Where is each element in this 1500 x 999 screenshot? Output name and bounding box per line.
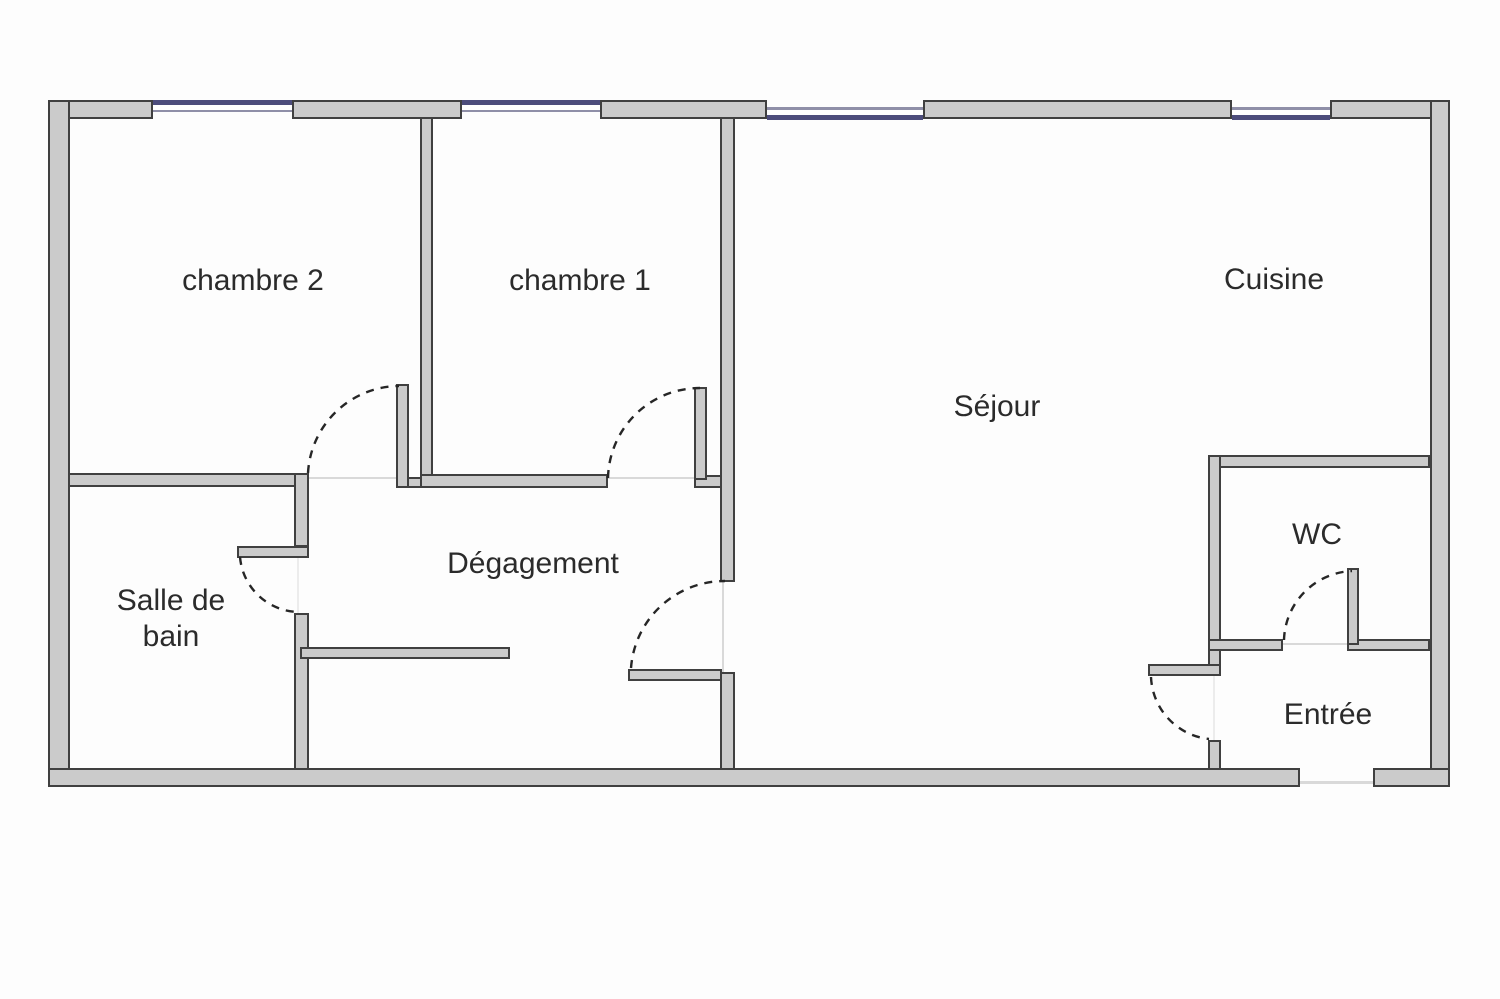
outer-wall-left (48, 100, 70, 787)
room-label-salle-de-bain: Salle de bain (117, 583, 225, 655)
window-sejour (767, 107, 923, 120)
door-leaf-wc (1347, 568, 1359, 645)
outer-wall-top-segment-3 (600, 100, 767, 119)
outer-wall-right (1430, 100, 1450, 787)
wall-sejour-divider-upper (720, 117, 735, 582)
room-label-chambre2: chambre 2 (182, 263, 324, 299)
wall-salle-de-bain-right-upper (294, 473, 309, 547)
door-leaf-sejour (628, 669, 722, 681)
door-arc-chambre2 (308, 386, 399, 473)
wall-degagement-top (420, 474, 608, 488)
wall-sejour-divider-lower (720, 672, 735, 770)
wall-wc-bottom-left (1208, 639, 1283, 651)
door-leaf-entree (1148, 664, 1221, 676)
door-arc-chambre1 (608, 388, 700, 478)
room-label-salle-de-bain-line2: bain (117, 619, 225, 655)
room-label-wc: WC (1292, 517, 1342, 553)
window-chambre2 (153, 100, 292, 112)
room-label-entree: Entrée (1284, 697, 1372, 733)
wall-salle-de-bain-top (68, 473, 309, 487)
door-arc-salle-de-bain (240, 557, 298, 612)
room-label-degagement: Dégagement (447, 546, 619, 582)
door-swing-arcs (0, 0, 1500, 999)
door-arc-entree (1151, 677, 1209, 739)
wall-entree-stub (1208, 740, 1221, 770)
wall-chambre1-chambre2-divider (420, 117, 433, 487)
wall-degagement-lower-stub (300, 647, 510, 659)
wall-wc-top (1208, 455, 1430, 468)
room-label-cuisine: Cuisine (1224, 262, 1324, 298)
window-chambre1 (462, 100, 600, 112)
door-opening-chambre2 (309, 477, 396, 479)
wall-wc-bottom-right (1347, 639, 1430, 651)
room-label-salle-de-bain-line1: Salle de (117, 583, 225, 619)
door-leaf-chambre1 (694, 387, 707, 480)
entrance-door-opening (1300, 781, 1373, 784)
door-opening-entree (1213, 676, 1215, 740)
door-leaf-chambre2 (396, 384, 409, 488)
outer-wall-bottom-segment-2 (1373, 768, 1450, 787)
door-arc-wc (1284, 571, 1352, 640)
outer-wall-top-segment-2 (292, 100, 462, 119)
floor-plan: chambre 2 chambre 1 Cuisine Séjour Dégag… (0, 0, 1500, 999)
outer-wall-top-segment-4 (923, 100, 1232, 119)
door-arc-sejour (631, 581, 725, 668)
room-label-sejour: Séjour (954, 389, 1041, 425)
outer-wall-bottom-segment-1 (48, 768, 1300, 787)
wall-salle-de-bain-right-lower (294, 613, 309, 770)
door-opening-sejour (722, 582, 724, 672)
door-opening-chambre1 (608, 477, 694, 479)
room-label-chambre1: chambre 1 (509, 263, 651, 299)
window-cuisine (1232, 107, 1330, 120)
door-opening-salle-de-bain (297, 558, 299, 613)
door-opening-wc (1283, 643, 1347, 645)
door-leaf-salle-de-bain (237, 546, 309, 558)
